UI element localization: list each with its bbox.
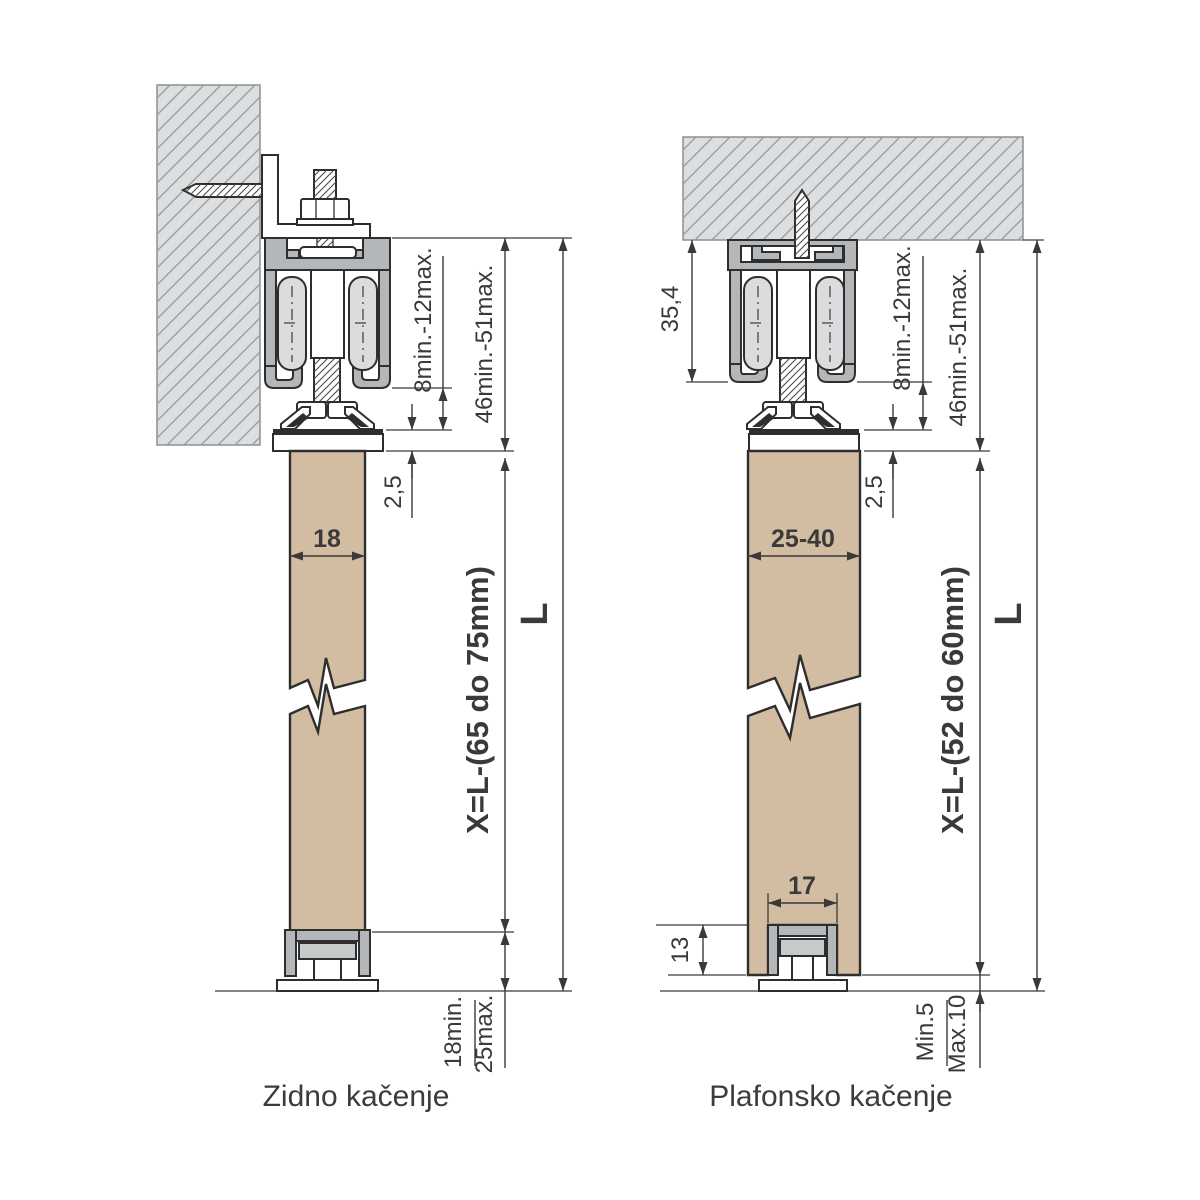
ceiling-mount-caption: Plafonsko kačenje bbox=[709, 1080, 953, 1113]
door-top-plate bbox=[749, 434, 859, 451]
dim-door-height-label: X=L-(52 do 60mm) bbox=[935, 566, 970, 834]
door-top-plate bbox=[273, 434, 383, 451]
ceiling-floor-guide bbox=[759, 925, 847, 991]
ceiling-mount-view: 35,4 8min.-12max. 46min.-51max. 2,5 X=L-… bbox=[656, 137, 1045, 1113]
door-lower bbox=[290, 684, 365, 932]
dim-floor-gap-min-label: 18min. bbox=[440, 996, 467, 1068]
bracket-nut bbox=[301, 199, 349, 221]
dim-door-width-label: 25-40 bbox=[771, 525, 835, 553]
bracket-washer bbox=[297, 219, 353, 225]
dim-groove-depth-label: 13 bbox=[667, 937, 694, 964]
guide-floor-plate bbox=[277, 980, 378, 991]
dim-track-height-label: 35,4 bbox=[657, 286, 684, 333]
dim-total-height-label: L bbox=[988, 602, 1030, 625]
dim-top-clearance-label: 46min.-51max. bbox=[471, 265, 498, 424]
hanger-body bbox=[777, 270, 810, 358]
wall-mount-caption: Zidno kačenje bbox=[263, 1080, 450, 1113]
dim-floor-gap-min-label: Min.5 bbox=[912, 1003, 939, 1062]
guide-block bbox=[299, 943, 356, 959]
dim-plate-thickness-label: 2,5 bbox=[380, 475, 407, 508]
dim-door-width-label: 18 bbox=[313, 525, 341, 553]
guide-floor-plate bbox=[759, 980, 847, 991]
sliding-door-mounting-diagram: 8min.-12max. 46min.-51max. 2,5 X=L-(65 d… bbox=[0, 0, 1200, 1200]
dim-total-height-label: L bbox=[514, 602, 556, 625]
door-upper bbox=[748, 451, 860, 710]
dim-floor-gap-max-label: Max.10 bbox=[944, 995, 971, 1074]
wall-floor-guide bbox=[277, 930, 378, 991]
dim-hanger-adjust-label: 8min.-12max. bbox=[410, 247, 437, 392]
ceiling-roller-carriage bbox=[744, 270, 859, 451]
guide-block bbox=[780, 939, 825, 956]
door-upper bbox=[290, 451, 365, 706]
dim-plate-thickness-label: 2,5 bbox=[861, 475, 888, 508]
dim-hanger-adjust-label: 8min.-12max. bbox=[889, 245, 916, 390]
dim-top-clearance-label: 46min.-51max. bbox=[945, 268, 972, 427]
wall-roller-carriage bbox=[273, 270, 383, 451]
hanger-body bbox=[311, 270, 344, 358]
guide-stem bbox=[792, 956, 813, 980]
dim-floor-gap-max-label: 25max. bbox=[471, 995, 498, 1074]
wall-mount-view: 8min.-12max. 46min.-51max. 2,5 X=L-(65 d… bbox=[157, 85, 572, 1113]
guide-stem bbox=[314, 959, 341, 980]
wall-door-panel bbox=[290, 451, 365, 932]
ceiling-hatching bbox=[683, 137, 1023, 240]
track-washer bbox=[300, 247, 356, 258]
wall-hatching bbox=[157, 85, 260, 445]
dim-door-height-label: X=L-(65 do 75mm) bbox=[460, 566, 495, 834]
technical-drawing-page: 8min.-12max. 46min.-51max. 2,5 X=L-(65 d… bbox=[0, 0, 1200, 1200]
dim-groove-width-label: 17 bbox=[788, 872, 816, 900]
